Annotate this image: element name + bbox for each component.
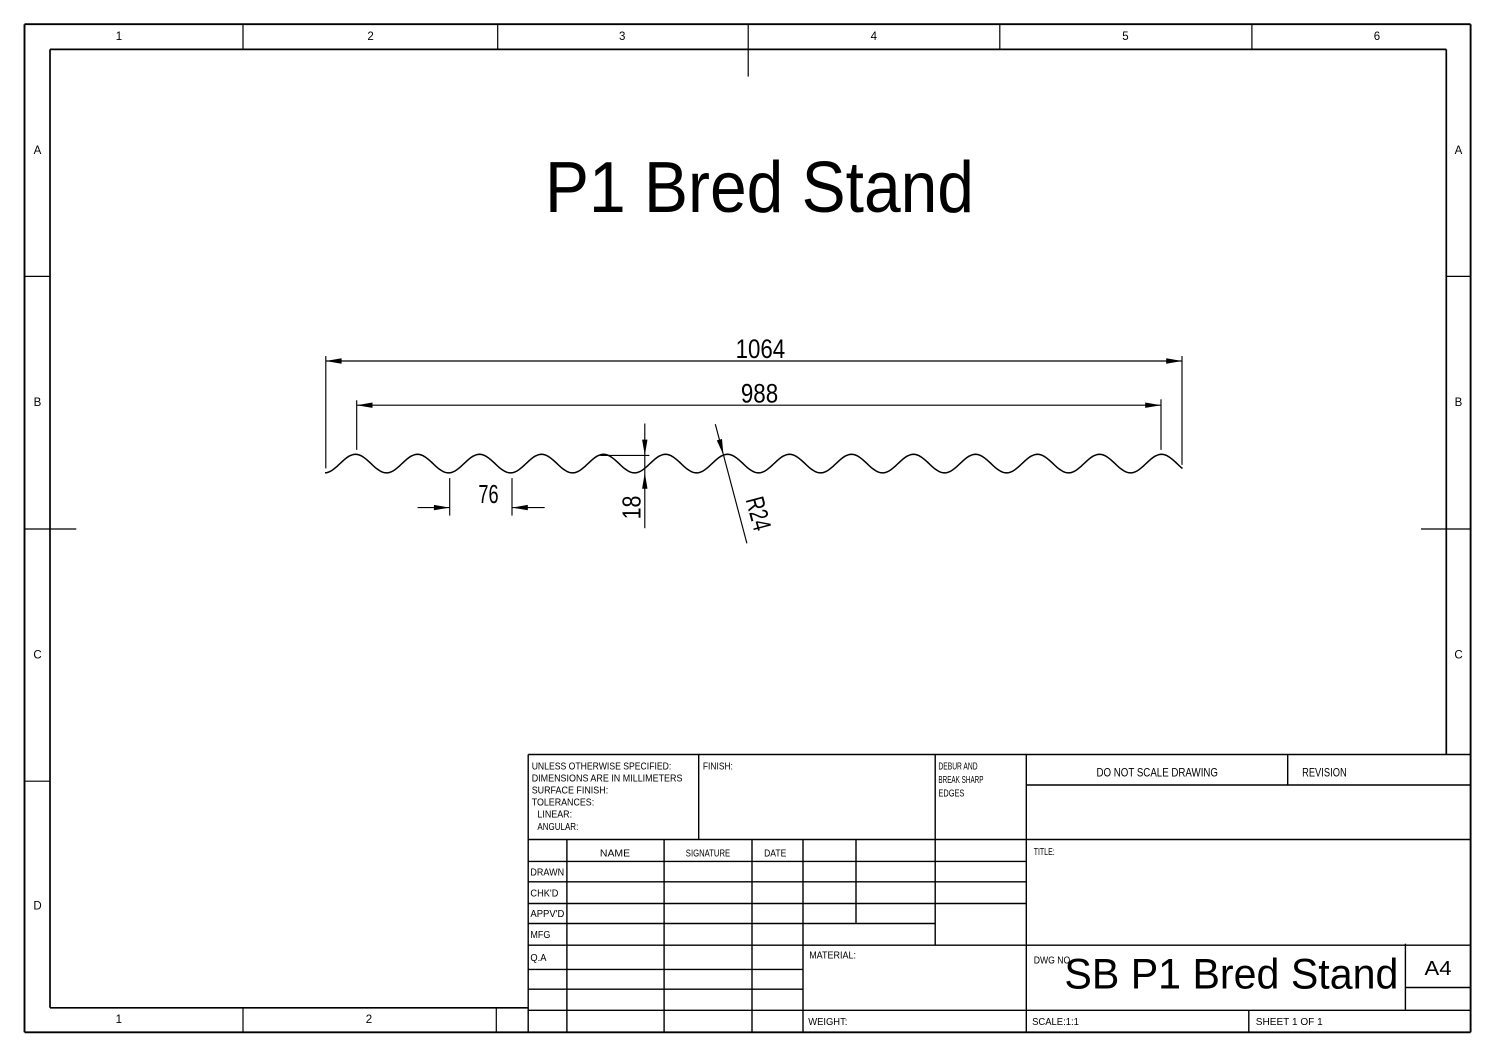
svg-text:5: 5 bbox=[1122, 31, 1128, 43]
svg-text:1064: 1064 bbox=[736, 334, 786, 364]
svg-text:ANGULAR:: ANGULAR: bbox=[537, 821, 578, 833]
svg-text:18: 18 bbox=[616, 496, 646, 520]
svg-text:C: C bbox=[33, 649, 41, 661]
svg-text:MATERIAL:: MATERIAL: bbox=[809, 950, 856, 962]
svg-text:A: A bbox=[1455, 145, 1463, 157]
svg-text:2: 2 bbox=[366, 1014, 372, 1026]
svg-text:2: 2 bbox=[367, 31, 373, 43]
svg-text:Q.A: Q.A bbox=[530, 952, 546, 964]
svg-text:REVISION: REVISION bbox=[1302, 766, 1347, 780]
svg-text:SHEET 1 OF 1: SHEET 1 OF 1 bbox=[1256, 1016, 1323, 1028]
svg-text:WEIGHT:: WEIGHT: bbox=[808, 1016, 847, 1028]
svg-text:76: 76 bbox=[478, 479, 498, 509]
svg-text:MFG: MFG bbox=[530, 929, 550, 941]
svg-text:UNLESS OTHERWISE SPECIFIED:: UNLESS OTHERWISE SPECIFIED: bbox=[532, 761, 672, 773]
svg-text:P1 Bred Stand: P1 Bred Stand bbox=[545, 148, 974, 228]
svg-text:NAME: NAME bbox=[600, 848, 630, 860]
svg-text:A: A bbox=[34, 145, 42, 157]
svg-text:SB P1 Bred Stand: SB P1 Bred Stand bbox=[1064, 951, 1398, 999]
svg-text:LINEAR:: LINEAR: bbox=[537, 809, 572, 821]
svg-text:B: B bbox=[1455, 397, 1463, 409]
svg-text:4: 4 bbox=[871, 31, 878, 43]
svg-text:FINISH:: FINISH: bbox=[703, 761, 733, 773]
svg-text:DWG NO.: DWG NO. bbox=[1034, 955, 1073, 967]
svg-text:988: 988 bbox=[741, 378, 778, 408]
svg-text:C: C bbox=[1454, 649, 1462, 661]
svg-text:DIMENSIONS ARE IN MILLIMETERS: DIMENSIONS ARE IN MILLIMETERS bbox=[532, 772, 683, 784]
svg-text:CHK'D: CHK'D bbox=[530, 887, 558, 899]
svg-text:APPV'D: APPV'D bbox=[530, 908, 564, 920]
svg-text:1: 1 bbox=[116, 31, 122, 43]
svg-text:D: D bbox=[33, 901, 41, 913]
svg-text:TOLERANCES:: TOLERANCES: bbox=[532, 797, 595, 809]
svg-text:1: 1 bbox=[116, 1014, 122, 1026]
svg-text:DATE: DATE bbox=[764, 848, 786, 860]
svg-text:6: 6 bbox=[1374, 31, 1380, 43]
svg-text:EDGES: EDGES bbox=[938, 788, 964, 800]
svg-text:B: B bbox=[34, 397, 42, 409]
svg-text:SURFACE FINISH:: SURFACE FINISH: bbox=[532, 784, 609, 796]
svg-text:DRAWN: DRAWN bbox=[530, 866, 564, 878]
svg-text:SIGNATURE: SIGNATURE bbox=[686, 848, 730, 860]
svg-text:SCALE:1:1: SCALE:1:1 bbox=[1032, 1016, 1079, 1028]
svg-text:DO NOT SCALE DRAWING: DO NOT SCALE DRAWING bbox=[1097, 766, 1219, 780]
svg-text:BREAK SHARP: BREAK SHARP bbox=[938, 774, 983, 786]
svg-text:TITLE:: TITLE: bbox=[1034, 846, 1055, 858]
svg-text:3: 3 bbox=[619, 31, 625, 43]
svg-text:A4: A4 bbox=[1425, 958, 1452, 980]
svg-text:DEBUR AND: DEBUR AND bbox=[938, 761, 977, 773]
